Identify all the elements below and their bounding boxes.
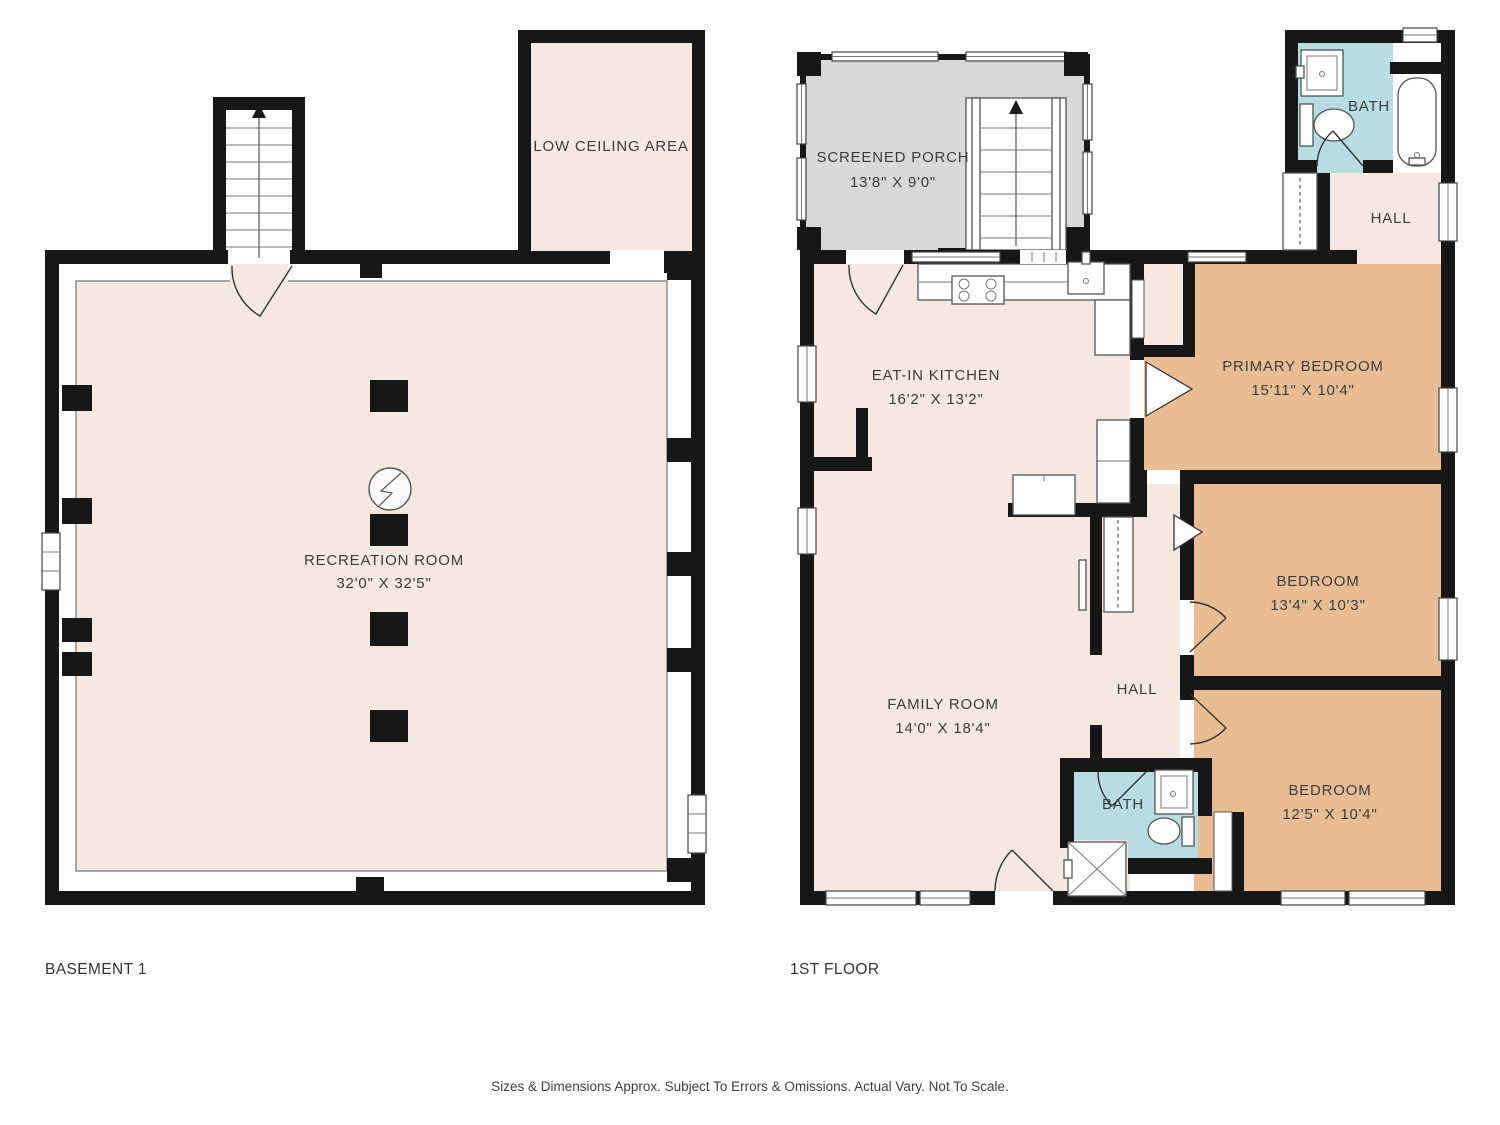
bath-doorway xyxy=(1317,160,1363,173)
low-ceiling-label: LOW CEILING AREA xyxy=(533,138,688,155)
screened-porch-label: SCREENED PORCH xyxy=(817,149,970,166)
basement-plan: LOW CEILING AREA RECREATION ROOM 32'0" X… xyxy=(42,30,706,905)
kitchen-dims: 16'2" X 13'2" xyxy=(888,391,983,408)
top-hall-label: HALL xyxy=(1371,210,1412,227)
top-bath-label: BATH xyxy=(1348,98,1390,115)
sink-icon xyxy=(1296,50,1343,96)
primary-bedroom-dims: 15'11" X 10'4" xyxy=(1251,382,1354,399)
primary-closet xyxy=(1144,264,1183,345)
middle-bedroom-dims: 13'4" X 10'3" xyxy=(1270,597,1365,614)
disclaimer-text: Sizes & Dimensions Approx. Subject To Er… xyxy=(491,1079,1008,1094)
screened-porch-dims: 13'8" X 9'0" xyxy=(850,174,936,191)
floor-plan-canvas: LOW CEILING AREA RECREATION ROOM 32'0" X… xyxy=(0,0,1500,1125)
closet xyxy=(1214,812,1232,891)
toilet-icon xyxy=(1148,817,1194,846)
porch-stairs xyxy=(966,98,1066,250)
middle-bedroom-label: BEDROOM xyxy=(1276,573,1359,590)
hall-bedroom-opening xyxy=(1357,250,1441,264)
family-room-label: FAMILY ROOM xyxy=(887,696,999,713)
closet-door xyxy=(1132,280,1144,338)
sink-icon xyxy=(1155,770,1193,814)
bottom-bedroom-label: BEDROOM xyxy=(1288,782,1371,799)
kitchen-label: EAT-IN KITCHEN xyxy=(872,367,1000,384)
floor-plan-page: LOW CEILING AREA RECREATION ROOM 32'0" X… xyxy=(0,0,1500,1125)
basement-title: BASEMENT 1 xyxy=(45,961,147,978)
family-room-dims: 14'0" X 18'4" xyxy=(895,720,990,737)
recreation-room-dims: 32'0" X 32'5" xyxy=(336,575,431,592)
bottom-bedroom-dims: 12'5" X 10'4" xyxy=(1282,806,1377,823)
shower-icon xyxy=(1064,842,1126,896)
electrical-panel-icon xyxy=(369,468,411,510)
stair-landing xyxy=(1020,250,1066,264)
stove-icon xyxy=(952,276,1004,304)
porch-kitchen-doorway xyxy=(846,250,904,264)
middle-hall-label: HALL xyxy=(1117,681,1158,698)
primary-bedroom-label: PRIMARY BEDROOM xyxy=(1222,358,1383,375)
bottom-bath-label: BATH xyxy=(1102,796,1144,813)
first-floor-title: 1ST FLOOR xyxy=(790,961,879,978)
entry-steps xyxy=(1283,173,1317,250)
bathtub-icon xyxy=(1398,78,1436,166)
first-floor-plan: SCREENED PORCH 13'8" X 9'0" BATH HALL EA… xyxy=(797,28,1457,905)
recreation-room-label: RECREATION ROOM xyxy=(304,552,464,569)
rear-doorway xyxy=(995,891,1053,905)
